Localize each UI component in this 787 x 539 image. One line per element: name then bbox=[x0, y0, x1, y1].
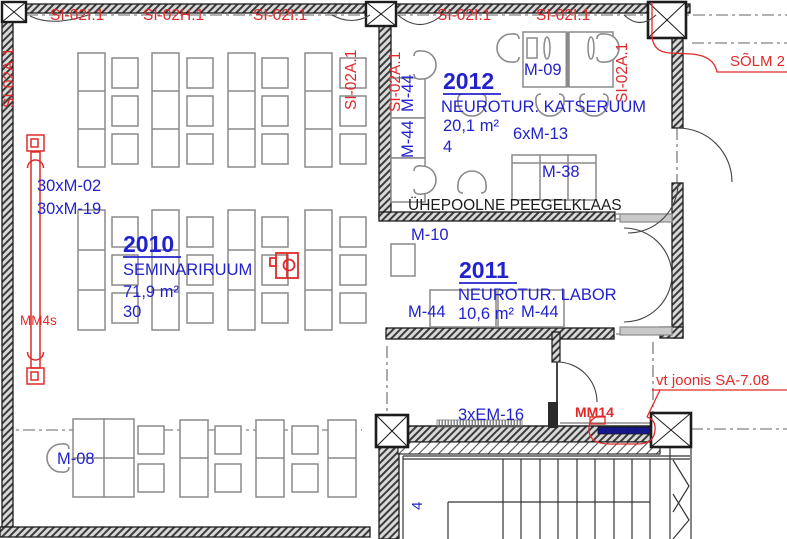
door-arc-right-wall bbox=[678, 128, 732, 182]
stair-direction-chevron bbox=[673, 460, 689, 512]
grid-label: SI-02I.1 bbox=[536, 7, 590, 24]
wall-bottom-left bbox=[0, 527, 370, 537]
furniture-label: M-10 bbox=[411, 226, 449, 244]
chair-label: M-08 bbox=[57, 450, 95, 468]
grid-label-vertical: SI-02A.1 bbox=[614, 43, 631, 103]
furniture-label-vertical: M-44 bbox=[399, 74, 417, 112]
room-number: 2010 bbox=[123, 231, 174, 257]
staircase bbox=[403, 447, 691, 539]
door-arc-right-wall-inner bbox=[628, 183, 678, 233]
furniture-label: M-44 bbox=[408, 303, 446, 321]
column bbox=[366, 2, 396, 26]
grid-label: SI-02H.1 bbox=[143, 7, 204, 24]
furniture-label: M-38 bbox=[542, 163, 580, 181]
wall-top bbox=[26, 4, 690, 13]
room-name: SEMINARIRUUM bbox=[123, 261, 252, 279]
column bbox=[651, 413, 691, 447]
room-area: 71,9 m² bbox=[123, 283, 179, 301]
furniture-label: M-44 bbox=[521, 303, 559, 321]
corridor-band bbox=[398, 402, 660, 454]
column bbox=[2, 2, 26, 22]
mirror-glass-note: ÜHEPOOLNE PEEGELKLAAS bbox=[408, 196, 622, 214]
radiator-mm4s bbox=[27, 135, 44, 384]
column bbox=[376, 415, 408, 447]
wall-2011-bottom bbox=[386, 328, 614, 339]
door-arc-vestibule bbox=[557, 362, 597, 402]
detail-reference: vt joonis SA-7.08 bbox=[656, 372, 769, 389]
grid-label-vertical: SI-02A.1 bbox=[343, 50, 360, 110]
grid-label-vertical: SI-02A.1 bbox=[1, 48, 18, 108]
chair-icon bbox=[414, 166, 436, 194]
chair-icon bbox=[458, 171, 486, 193]
monitor-icon bbox=[544, 37, 550, 59]
wall-stair-left bbox=[379, 447, 399, 539]
furniture-label: 6xM-13 bbox=[513, 125, 568, 143]
floor-plan-svg: SI-02I.1 SI-02H.1 SI-02I.1 SI-02I.1 SI-0… bbox=[0, 0, 787, 539]
wall-center-vertical bbox=[379, 14, 391, 218]
column bbox=[648, 2, 686, 38]
stair-direction-chevron bbox=[673, 494, 689, 539]
mm14-bar bbox=[598, 427, 652, 434]
computer-icon bbox=[527, 38, 537, 58]
grid-label: SI-02I.1 bbox=[437, 7, 491, 24]
furniture-label-vertical: M-44 bbox=[399, 120, 417, 158]
room-number: 2012 bbox=[443, 68, 494, 94]
grid-label: SI-02I.1 bbox=[50, 7, 104, 24]
monitor-icon bbox=[588, 37, 594, 59]
door-arc-2011 bbox=[624, 228, 672, 276]
room-name: NEUROTUR. KATSERUUM bbox=[441, 98, 646, 116]
partition-stub-lower bbox=[620, 327, 672, 335]
convector-label: 3xEM-16 bbox=[458, 406, 524, 424]
room-area: 10,6 m² bbox=[458, 305, 514, 323]
stair-label: 4 bbox=[409, 502, 426, 510]
room-area: 20,1 m² bbox=[443, 117, 499, 135]
floor-plan: SI-02I.1 SI-02H.1 SI-02I.1 SI-02I.1 SI-0… bbox=[0, 0, 787, 539]
room-2010-furniture bbox=[78, 53, 366, 330]
wall-right-upper bbox=[672, 36, 683, 128]
chair-icon bbox=[414, 51, 436, 79]
room-2010-labels: 30xM-02 30xM-19 2010 SEMINARIRUUM 71,9 m… bbox=[37, 177, 252, 321]
wall-vestibule-stub bbox=[552, 332, 560, 362]
room-number: 2011 bbox=[459, 257, 509, 283]
door-arc-2011 bbox=[624, 276, 672, 322]
cabinet-m10 bbox=[391, 244, 415, 276]
door-arc bbox=[398, 15, 442, 25]
mm14-label: MM14 bbox=[575, 404, 614, 420]
grid-label: SI-02I.1 bbox=[253, 7, 307, 24]
room-2012-furniture bbox=[391, 32, 619, 202]
room-seats: 4 bbox=[443, 138, 452, 156]
furniture-note: 30xM-02 bbox=[37, 177, 101, 195]
room-name: NEUROTUR. LABOR bbox=[458, 286, 617, 304]
room-seats: 30 bbox=[123, 303, 141, 321]
door-arc bbox=[332, 15, 370, 21]
furniture-label: M-09 bbox=[524, 61, 562, 79]
radiator-label: MM4s bbox=[20, 313, 57, 328]
room-2011-labels: M-10 2011 NEUROTUR. LABOR M-44 10,6 m² M… bbox=[408, 226, 617, 323]
wall-right-lower bbox=[672, 183, 683, 338]
solm-label: SÕLM 2 bbox=[730, 53, 785, 70]
chair-icon bbox=[497, 34, 519, 62]
furniture-note: 30xM-19 bbox=[37, 200, 101, 218]
door-post bbox=[548, 402, 558, 428]
